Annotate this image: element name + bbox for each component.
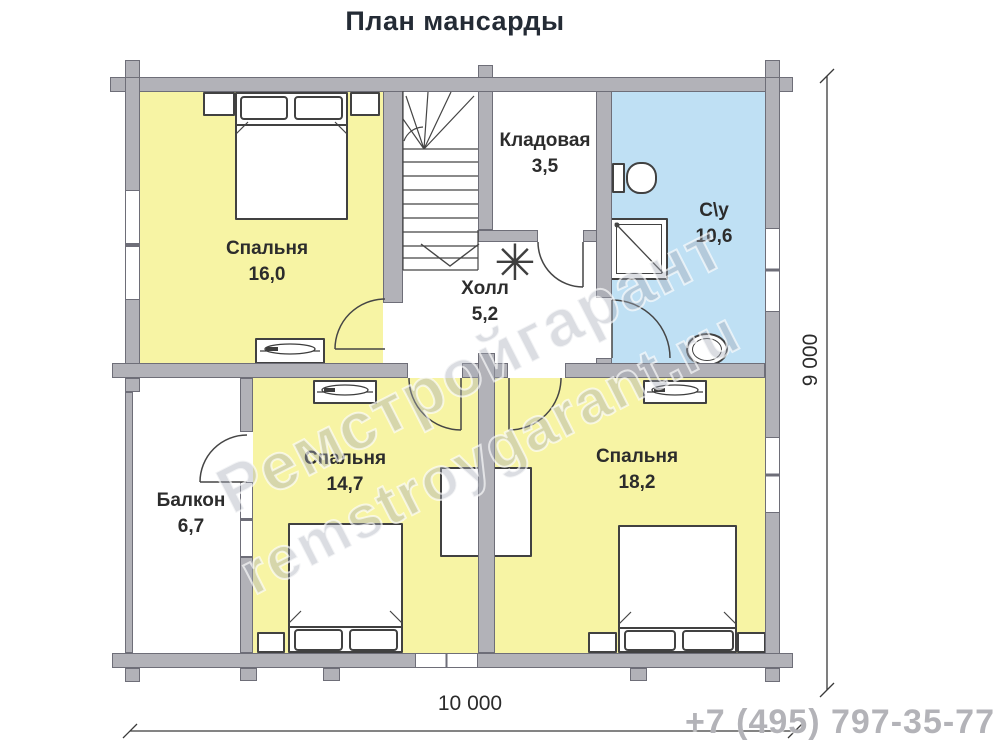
label-storage: Кладовая3,5: [485, 128, 605, 179]
shower-head: [615, 223, 620, 228]
label-bedroom-1: Спальня16,0: [207, 236, 327, 287]
staircase-direction-arrow: [421, 244, 479, 266]
door-bedroom-1: [335, 299, 385, 349]
staircase-treads: [403, 149, 478, 258]
phone-number: +7 (495) 797-35-77: [600, 703, 995, 742]
dimension-width-label: 10 000: [415, 692, 525, 716]
floor-plan: ✳ Спальня16,0 Кладовая3,5 С\у10,6 Холл5,…: [0, 0, 1000, 750]
label-bedroom-3: Спальня18,2: [577, 444, 697, 495]
page-title: План мансарды: [280, 6, 630, 37]
staircase-winders: [403, 92, 474, 149]
staircase-outline: [403, 91, 478, 270]
